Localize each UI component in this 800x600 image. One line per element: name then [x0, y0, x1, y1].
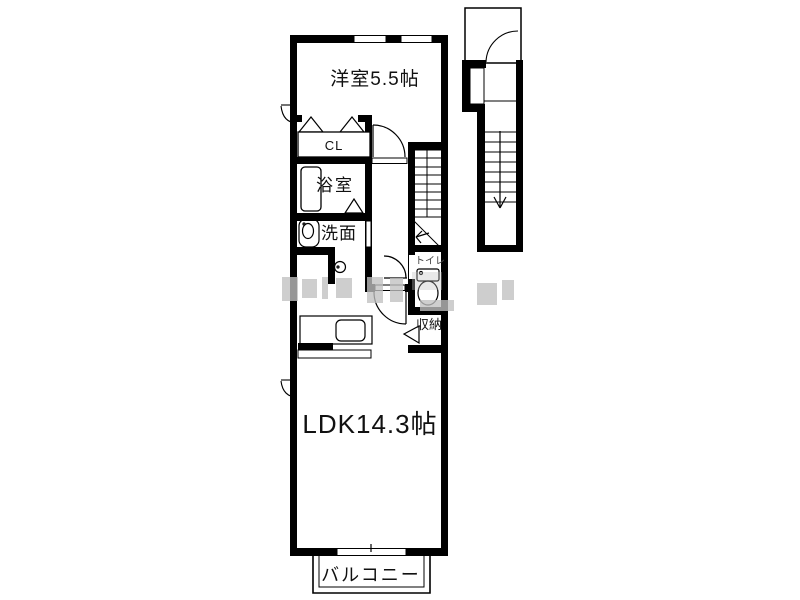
- bath-door-triangle: [345, 199, 363, 213]
- floorplan-canvas: 洋室5.5帖 CL 浴室 洗面 トイレ 収納 LDK14.3帖 バルコニー: [0, 0, 800, 600]
- western-room-label: 洋室5.5帖: [295, 70, 455, 89]
- western-room-door-arc: [373, 125, 405, 157]
- stairs-direction-arrow: [416, 231, 429, 243]
- storage-label: 収納: [409, 318, 449, 331]
- floorplan-drawing: [0, 0, 800, 600]
- kitchen-counter-icon: [298, 316, 372, 358]
- external-stairs-landing-top: [465, 8, 521, 63]
- balcony-label: バルコニー: [301, 566, 441, 584]
- ldk-label: LDK14.3帖: [270, 411, 470, 437]
- faucet-knob-icon: [335, 262, 346, 273]
- shoe-cabinet: [470, 68, 484, 104]
- closet-door-triangle-left: [299, 117, 323, 132]
- washroom-label: 洗面: [299, 225, 379, 242]
- toilet-label: トイレ: [408, 257, 452, 267]
- external-stairs-treads: [470, 68, 516, 202]
- down-arrow: [494, 131, 506, 208]
- external-stairs-walls: [462, 60, 523, 252]
- external-stairs: [462, 8, 523, 252]
- window-top-2: [401, 36, 432, 43]
- closet-label: CL: [298, 139, 370, 152]
- toilet-door-arc: [384, 256, 407, 278]
- bathroom-label: 浴室: [293, 177, 377, 194]
- window-top-1: [354, 36, 386, 43]
- outer-walls: [290, 35, 448, 556]
- toilet-icon: [417, 269, 439, 305]
- internal-stairs: [411, 150, 444, 251]
- ldk-door-arc: [374, 292, 406, 324]
